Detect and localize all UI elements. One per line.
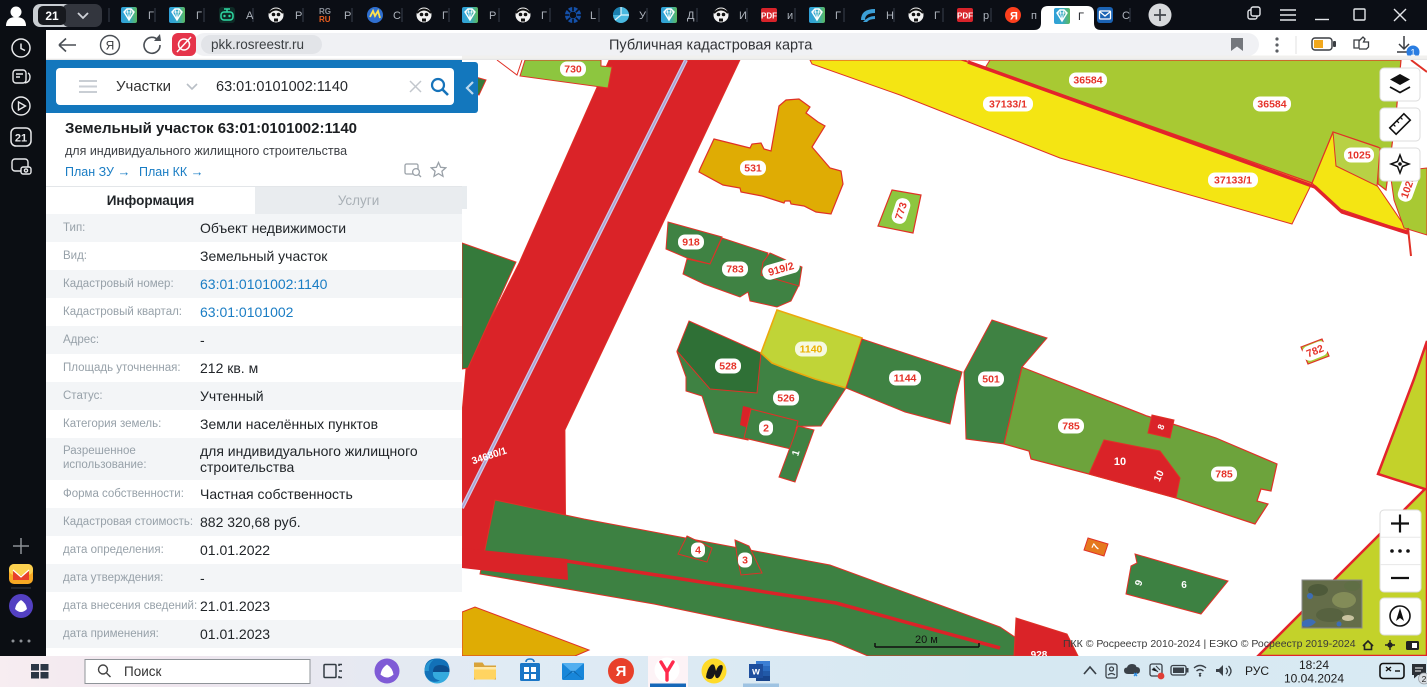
svg-text:PDF: PDF [957,12,973,21]
svg-text:21: 21 [45,9,59,23]
svg-text:Г: Г [196,10,202,22]
svg-text:10: 10 [1114,456,1126,468]
svg-text:Г: Г [934,10,940,22]
svg-text:Р: Р [489,10,496,22]
svg-text:Поиск: Поиск [124,664,162,679]
svg-text:L: L [590,10,596,22]
svg-text:RU: RU [319,15,331,24]
svg-text:918: 918 [682,237,700,249]
svg-text:4: 4 [695,545,701,557]
svg-text:У: У [639,10,647,22]
svg-text:37133/1: 37133/1 [1214,175,1252,187]
svg-text:и: и [787,10,793,22]
svg-text:С: С [393,10,401,22]
svg-text:10.04.2024: 10.04.2024 [1284,672,1344,686]
svg-text:Р: Р [344,10,351,22]
svg-text:526: 526 [777,393,795,405]
svg-text:531: 531 [744,163,762,175]
svg-text:Г: Г [541,10,547,22]
svg-text:20 м: 20 м [915,634,938,646]
svg-text:РУС: РУС [1245,664,1269,678]
svg-text:Г: Г [835,10,841,22]
svg-text:Публичная кадастровая карта: Публичная кадастровая карта [609,38,813,54]
svg-text:А: А [246,10,254,22]
svg-text:21: 21 [15,133,27,145]
svg-text:501: 501 [982,374,1000,386]
svg-text:Д: Д [687,10,695,22]
svg-text:w: w [751,667,760,678]
svg-text:ПКК © Росреестр 2010-2024 | ЕЭ: ПКК © Росреестр 2010-2024 | ЕЭКО © Росре… [1063,638,1356,650]
svg-text:Г: Г [1078,11,1084,23]
svg-text:Я: Я [616,663,627,680]
svg-text:Г: Г [442,10,448,22]
svg-text:730: 730 [564,64,582,76]
svg-text:Н: Н [886,10,894,22]
svg-text:785: 785 [1215,469,1233,481]
svg-text:36584: 36584 [1257,99,1286,111]
svg-text:п: п [1031,10,1037,22]
svg-text:18:24: 18:24 [1299,658,1329,672]
svg-text:И: И [739,10,747,22]
svg-text:783: 783 [726,264,744,276]
svg-text:С: С [1122,10,1130,22]
svg-text:Р: Р [295,10,302,22]
svg-text:Г: Г [148,10,154,22]
svg-text:6: 6 [1181,580,1187,591]
svg-text:36584: 36584 [1073,75,1102,87]
svg-text:1025: 1025 [1347,150,1371,162]
svg-text:1144: 1144 [894,373,917,385]
svg-text:528: 528 [719,361,737,373]
svg-text:2: 2 [1422,674,1427,684]
svg-text:р: р [983,10,989,22]
svg-text:Я: Я [1010,11,1018,23]
svg-text:PDF: PDF [761,12,777,21]
svg-text:37133/1: 37133/1 [989,99,1027,111]
svg-text:Я: Я [106,39,115,53]
svg-text:3: 3 [742,555,748,567]
svg-text:785: 785 [1062,421,1080,433]
svg-text:pkk.rosreestr.ru: pkk.rosreestr.ru [211,37,304,52]
svg-text:1140: 1140 [800,344,823,356]
svg-text:2: 2 [763,423,769,435]
